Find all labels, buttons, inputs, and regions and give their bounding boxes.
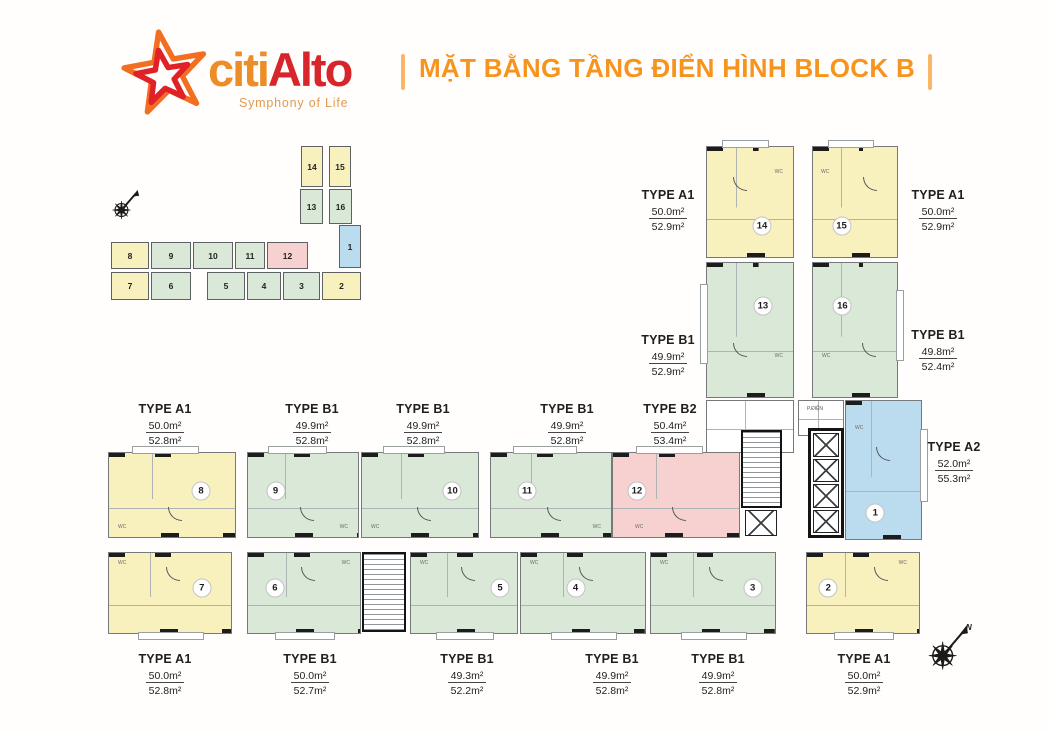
minimap-unit-number: 15 [335, 162, 344, 172]
type-area-gross: 52.4m² [896, 360, 980, 373]
type-area-gross: 52.8m² [381, 434, 465, 447]
unit-number-badge: 10 [443, 481, 462, 500]
door-arc-icon [863, 177, 877, 191]
minimap-compass-icon [104, 188, 142, 226]
brand-star-icon [120, 26, 212, 118]
minimap-unit-1[interactable]: 1 [339, 225, 361, 268]
minimap-unit-7[interactable]: 7 [111, 272, 149, 300]
unit-3[interactable]: 3 WC [650, 552, 776, 634]
type-area-gross: 52.7m² [268, 684, 352, 697]
minimap-unit-number: 9 [169, 251, 174, 261]
door-arc-icon [547, 507, 561, 521]
compass-icon: N [916, 622, 974, 680]
type-label-unit-15: TYPE A1 50.0m² 52.9m² [896, 188, 980, 233]
unit-16[interactable]: 16 WC [812, 262, 898, 398]
type-label-unit-6: TYPE B1 50.0m² 52.7m² [268, 652, 352, 697]
unit-number-badge: 13 [753, 296, 772, 315]
door-arc-icon [733, 343, 747, 357]
door-arc-icon [461, 567, 475, 581]
minimap-unit-number: 13 [307, 202, 316, 212]
page-title: MẶT BẰNG TẦNG ĐIỂN HÌNH BLOCK B [413, 53, 921, 84]
door-arc-icon [874, 567, 888, 581]
type-area-net: 49.9m² [293, 419, 332, 433]
door-arc-icon [301, 567, 315, 581]
wc-label: WC [635, 524, 643, 530]
type-label-unit-8: TYPE A1 50.0m² 52.8m² [123, 402, 207, 447]
brand-part1: citi [208, 43, 268, 96]
wc-label: WC [420, 560, 428, 566]
minimap-unit-number: 14 [307, 162, 316, 172]
type-area-net: 49.3m² [448, 669, 487, 683]
unit-15[interactable]: 15 WC [812, 146, 898, 258]
minimap-unit-16[interactable]: 16 [329, 189, 352, 224]
type-area-gross: 52.2m² [425, 684, 509, 697]
type-name: TYPE B1 [525, 402, 609, 416]
type-label-unit-1: TYPE A2 52.0m² 55.3m² [912, 440, 996, 485]
type-name: TYPE B1 [381, 402, 465, 416]
door-arc-icon [579, 567, 593, 581]
door-arc-icon [876, 447, 890, 461]
type-name: TYPE A1 [626, 188, 710, 202]
unit-number-badge: 1 [866, 503, 885, 522]
type-area-net: 49.8m² [919, 345, 958, 359]
wc-label: WC [342, 560, 350, 566]
unit-12[interactable]: 12 WC [612, 452, 740, 538]
type-label-unit-11: TYPE B1 49.9m² 52.8m² [525, 402, 609, 447]
wc-label: WC [118, 560, 126, 566]
wc-label: WC [899, 560, 907, 566]
type-label-unit-5: TYPE B1 49.3m² 52.2m² [425, 652, 509, 697]
type-label-unit-12: TYPE B2 50.4m² 53.4m² [628, 402, 712, 447]
type-area-net: 50.0m² [649, 205, 688, 219]
wc-label: WC [340, 524, 348, 530]
brand-part2: Alto [268, 43, 351, 96]
type-name: TYPE B2 [628, 402, 712, 416]
type-area-net: 49.9m² [548, 419, 587, 433]
unit-number-badge: 6 [265, 579, 284, 598]
unit-8[interactable]: 8 WC [108, 452, 236, 538]
wc-label: WC [821, 169, 829, 175]
type-name: TYPE A1 [123, 652, 207, 666]
minimap-unit-number: 3 [299, 281, 304, 291]
door-arc-icon [166, 567, 180, 581]
door-arc-icon [168, 507, 182, 521]
type-name: TYPE A1 [896, 188, 980, 202]
type-area-net: 49.9m² [699, 669, 738, 683]
minimap-unit-10[interactable]: 10 [193, 242, 233, 269]
type-name: TYPE B1 [626, 333, 710, 347]
minimap-unit-4[interactable]: 4 [247, 272, 281, 300]
type-name: TYPE A1 [123, 402, 207, 416]
minimap-unit-6[interactable]: 6 [151, 272, 191, 300]
minimap-unit-14[interactable]: 14 [301, 146, 323, 187]
unit-7[interactable]: 7 WC [108, 552, 232, 634]
unit-number-badge: 14 [753, 217, 772, 236]
minimap-unit-number: 10 [208, 251, 217, 261]
electrical-room-label: P.ĐIỆN [807, 406, 823, 412]
title-separator-right [928, 54, 932, 90]
minimap-unit-12[interactable]: 12 [267, 242, 308, 269]
elevator-icon [813, 433, 839, 457]
unit-number-badge: 8 [191, 481, 210, 500]
type-name: TYPE B1 [896, 328, 980, 342]
type-label-unit-7: TYPE A1 50.0m² 52.8m² [123, 652, 207, 697]
type-label-unit-9: TYPE B1 49.9m² 52.8m² [270, 402, 354, 447]
minimap-unit-13[interactable]: 13 [300, 189, 323, 224]
minimap-unit-number: 6 [169, 281, 174, 291]
type-area-gross: 52.8m² [123, 434, 207, 447]
type-name: TYPE B1 [270, 402, 354, 416]
title-separator-left [401, 54, 405, 90]
type-area-gross: 52.9m² [626, 220, 710, 233]
type-name: TYPE A1 [822, 652, 906, 666]
minimap-unit-15[interactable]: 15 [329, 146, 351, 187]
unit-2[interactable]: 2 WC [806, 552, 920, 634]
stairwell [741, 430, 782, 508]
elevator-icon [813, 484, 839, 508]
type-area-net: 49.9m² [649, 350, 688, 364]
type-area-gross: 52.8m² [676, 684, 760, 697]
elevator-icon [745, 510, 777, 536]
type-area-gross: 52.8m² [570, 684, 654, 697]
elevator-icon [813, 510, 839, 534]
unit-number-badge: 16 [833, 296, 852, 315]
unit-11[interactable]: 11 WC [490, 452, 612, 538]
unit-number-badge: 12 [627, 481, 646, 500]
unit-number-badge: 4 [566, 579, 585, 598]
stairwell [362, 552, 406, 632]
unit-14[interactable]: 14 WC [706, 146, 794, 258]
door-arc-icon [709, 567, 723, 581]
type-label-unit-16: TYPE B1 49.8m² 52.4m² [896, 328, 980, 373]
wc-label: WC [660, 560, 668, 566]
minimap-unit-2[interactable]: 2 [322, 272, 361, 300]
minimap-unit-9[interactable]: 9 [151, 242, 191, 269]
type-area-net: 50.0m² [146, 669, 185, 683]
type-name: TYPE B1 [268, 652, 352, 666]
wc-label: WC [775, 169, 783, 175]
unit-5[interactable]: 5 WC [410, 552, 518, 634]
unit-4[interactable]: 4 WC [520, 552, 646, 634]
type-area-net: 50.0m² [845, 669, 884, 683]
type-area-gross: 52.9m² [896, 220, 980, 233]
type-name: TYPE B1 [676, 652, 760, 666]
type-area-net: 50.0m² [291, 669, 330, 683]
type-label-unit-4: TYPE B1 49.9m² 52.8m² [570, 652, 654, 697]
type-area-gross: 52.8m² [123, 684, 207, 697]
unit-13[interactable]: 13 WC [706, 262, 794, 398]
type-area-gross: 52.9m² [822, 684, 906, 697]
type-area-gross: 52.8m² [270, 434, 354, 447]
door-arc-icon [733, 177, 747, 191]
unit-number-badge: 2 [819, 579, 838, 598]
elevator-bank [808, 428, 844, 538]
minimap-unit-number: 4 [262, 281, 267, 291]
type-label-unit-10: TYPE B1 49.9m² 52.8m² [381, 402, 465, 447]
door-arc-icon [672, 507, 686, 521]
wc-label: WC [593, 524, 601, 530]
type-label-unit-13: TYPE B1 49.9m² 52.9m² [626, 333, 710, 378]
type-area-gross: 55.3m² [912, 472, 996, 485]
door-arc-icon [300, 507, 314, 521]
wc-label: WC [530, 560, 538, 566]
door-arc-icon [417, 507, 431, 521]
type-area-net: 52.0m² [935, 457, 974, 471]
unit-number-badge: 5 [491, 579, 510, 598]
wc-label: WC [775, 353, 783, 359]
wc-label: WC [118, 524, 126, 530]
unit-10[interactable]: 10 WC [361, 452, 479, 538]
unit-number-badge: 9 [266, 481, 285, 500]
minimap-unit-number: 12 [283, 251, 292, 261]
type-label-unit-2: TYPE A1 50.0m² 52.9m² [822, 652, 906, 697]
type-area-net: 50.0m² [919, 205, 958, 219]
minimap-unit-number: 7 [128, 281, 133, 291]
minimap-unit-3[interactable]: 3 [283, 272, 320, 300]
page: citiAlto Symphony of Life MẶT BẰNG TẦNG … [0, 0, 1050, 731]
unit-number-badge: 11 [518, 481, 537, 500]
type-name: TYPE B1 [570, 652, 654, 666]
unit-1[interactable]: 1 WC [845, 400, 922, 540]
minimap-unit-8[interactable]: 8 [111, 242, 149, 269]
minimap-unit-5[interactable]: 5 [207, 272, 245, 300]
minimap-unit-number: 1 [348, 242, 353, 252]
type-area-gross: 53.4m² [628, 434, 712, 447]
unit-9[interactable]: 9 WC [247, 452, 359, 538]
type-label-unit-14: TYPE A1 50.0m² 52.9m² [626, 188, 710, 233]
type-name: TYPE B1 [425, 652, 509, 666]
type-area-gross: 52.8m² [525, 434, 609, 447]
unit-number-badge: 15 [832, 217, 851, 236]
door-arc-icon [862, 343, 876, 357]
brand-tagline: Symphony of Life [239, 96, 348, 110]
type-area-net: 49.9m² [593, 669, 632, 683]
type-area-gross: 52.9m² [626, 365, 710, 378]
minimap-unit-number: 16 [336, 202, 345, 212]
type-area-net: 50.4m² [651, 419, 690, 433]
compass-north-label: N [966, 623, 972, 632]
minimap-unit-number: 2 [339, 281, 344, 291]
minimap-unit-number: 11 [246, 251, 255, 261]
type-label-unit-3: TYPE B1 49.9m² 52.8m² [676, 652, 760, 697]
minimap-unit-11[interactable]: 11 [235, 242, 265, 269]
elevator-icon [813, 459, 839, 483]
unit-6[interactable]: 6 WC [247, 552, 361, 634]
wc-label: WC [371, 524, 379, 530]
type-name: TYPE A2 [912, 440, 996, 454]
type-area-net: 49.9m² [404, 419, 443, 433]
unit-number-badge: 3 [743, 579, 762, 598]
brand-wordmark: citiAlto [208, 42, 351, 97]
wc-label: WC [855, 425, 863, 431]
unit-number-badge: 7 [192, 579, 211, 598]
minimap-unit-number: 5 [224, 281, 229, 291]
wc-label: WC [822, 353, 830, 359]
type-area-net: 50.0m² [146, 419, 185, 433]
minimap-unit-number: 8 [128, 251, 133, 261]
